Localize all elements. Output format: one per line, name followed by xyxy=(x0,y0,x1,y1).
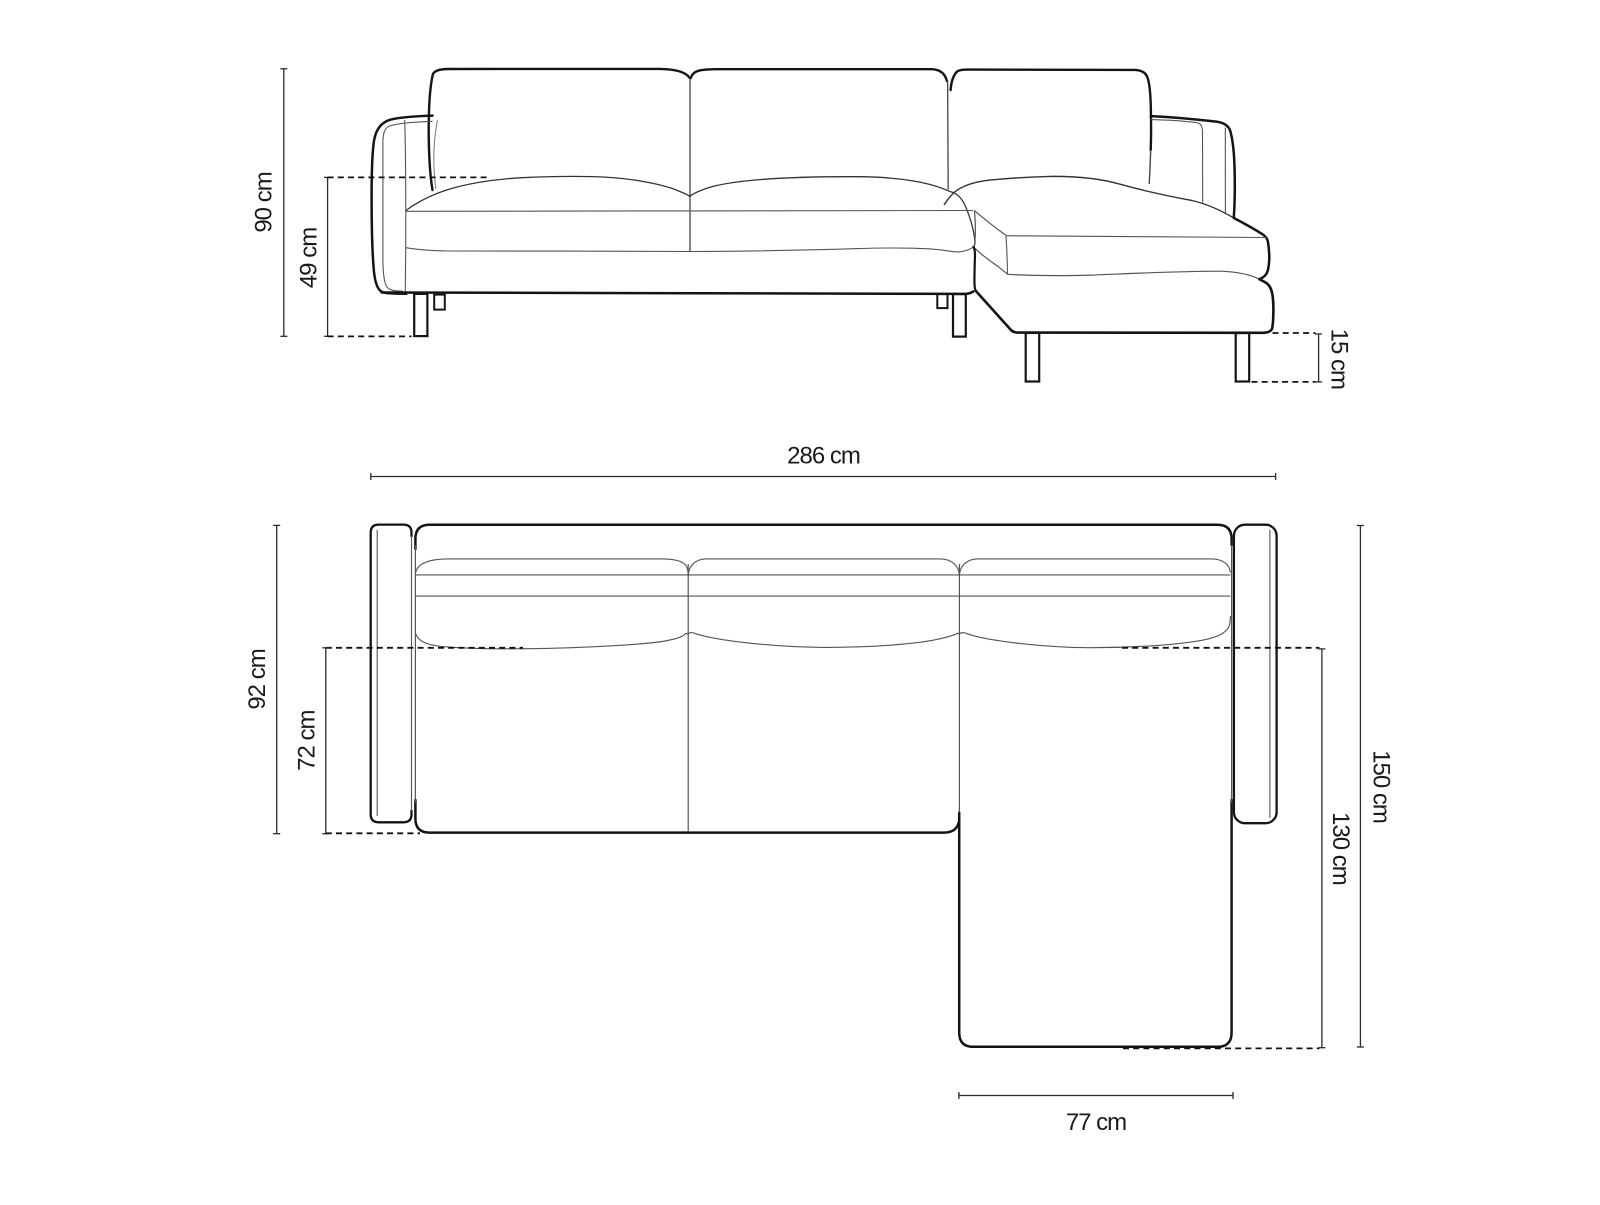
svg-text:90 cm: 90 cm xyxy=(250,172,277,232)
svg-text:286 cm: 286 cm xyxy=(787,443,860,470)
svg-text:92 cm: 92 cm xyxy=(244,649,271,709)
svg-text:72 cm: 72 cm xyxy=(293,711,320,771)
svg-text:150 cm: 150 cm xyxy=(1368,750,1395,823)
svg-text:15 cm: 15 cm xyxy=(1325,329,1352,389)
svg-text:130 cm: 130 cm xyxy=(1327,812,1354,885)
svg-text:77 cm: 77 cm xyxy=(1066,1109,1126,1136)
svg-text:49 cm: 49 cm xyxy=(295,228,322,288)
